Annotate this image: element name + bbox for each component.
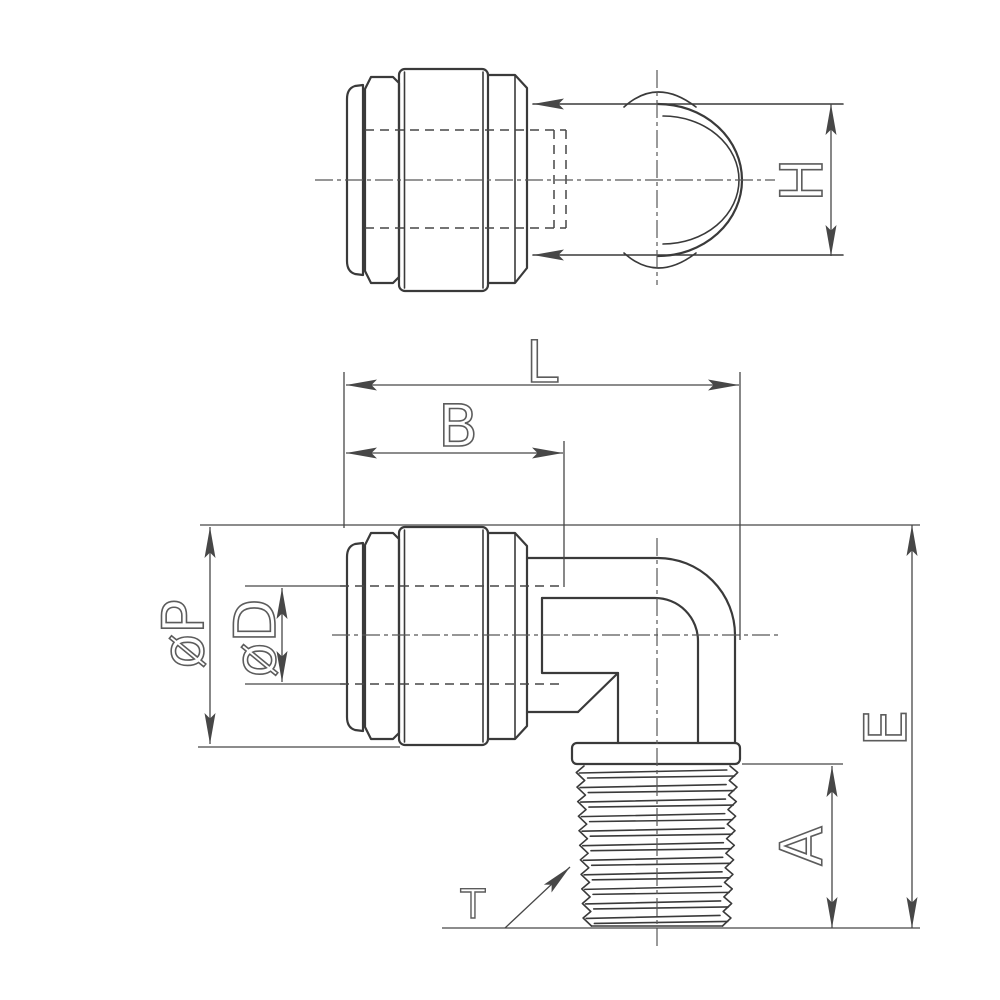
elbow-inner-profile bbox=[542, 598, 698, 743]
thread-line bbox=[585, 886, 722, 889]
elbow-shoulder-notch bbox=[542, 598, 618, 743]
collet-cap-outline bbox=[347, 543, 363, 731]
collar-outline bbox=[488, 75, 527, 283]
collar-outline bbox=[488, 533, 527, 739]
thread-flange bbox=[572, 743, 740, 764]
dim-label-L: L bbox=[526, 328, 558, 396]
thread-line bbox=[581, 799, 726, 802]
thread-line bbox=[590, 820, 733, 822]
elbow-chamfer-edge bbox=[578, 673, 618, 712]
top-view bbox=[315, 69, 843, 291]
dim-label-E: E bbox=[852, 710, 920, 747]
thread-line bbox=[594, 907, 729, 909]
drawing-canvas: L B H øP øD E A T bbox=[0, 0, 1000, 1000]
thread-line bbox=[591, 849, 731, 851]
thread-line bbox=[594, 921, 727, 923]
thread-line bbox=[592, 863, 731, 865]
dim-label-P: øP bbox=[151, 599, 217, 668]
thread-line bbox=[585, 901, 720, 904]
thread-line bbox=[588, 776, 735, 778]
dim-label-D: øD bbox=[223, 599, 289, 678]
thread-line bbox=[581, 814, 724, 817]
thread-line bbox=[584, 872, 722, 875]
technical-drawing: L B H øP øD E A T bbox=[0, 0, 1000, 1000]
thread-line bbox=[579, 770, 726, 773]
dim-label-T: T bbox=[460, 882, 486, 928]
thread-line bbox=[583, 843, 724, 846]
dim-label-B: B bbox=[438, 392, 478, 460]
thread-line bbox=[590, 834, 732, 836]
dim-label-H: H bbox=[768, 158, 836, 202]
thread-line bbox=[586, 915, 720, 918]
dim-label-A: A bbox=[768, 826, 836, 866]
thread-line bbox=[589, 805, 733, 807]
thread-line bbox=[582, 828, 724, 831]
thread-line bbox=[580, 785, 726, 788]
thread-line bbox=[593, 892, 729, 894]
body-cylinder-outline bbox=[399, 527, 488, 745]
thread-line bbox=[592, 878, 729, 880]
release-ring-outline bbox=[365, 533, 399, 739]
thread-line bbox=[583, 857, 722, 860]
thread-line bbox=[588, 791, 734, 793]
